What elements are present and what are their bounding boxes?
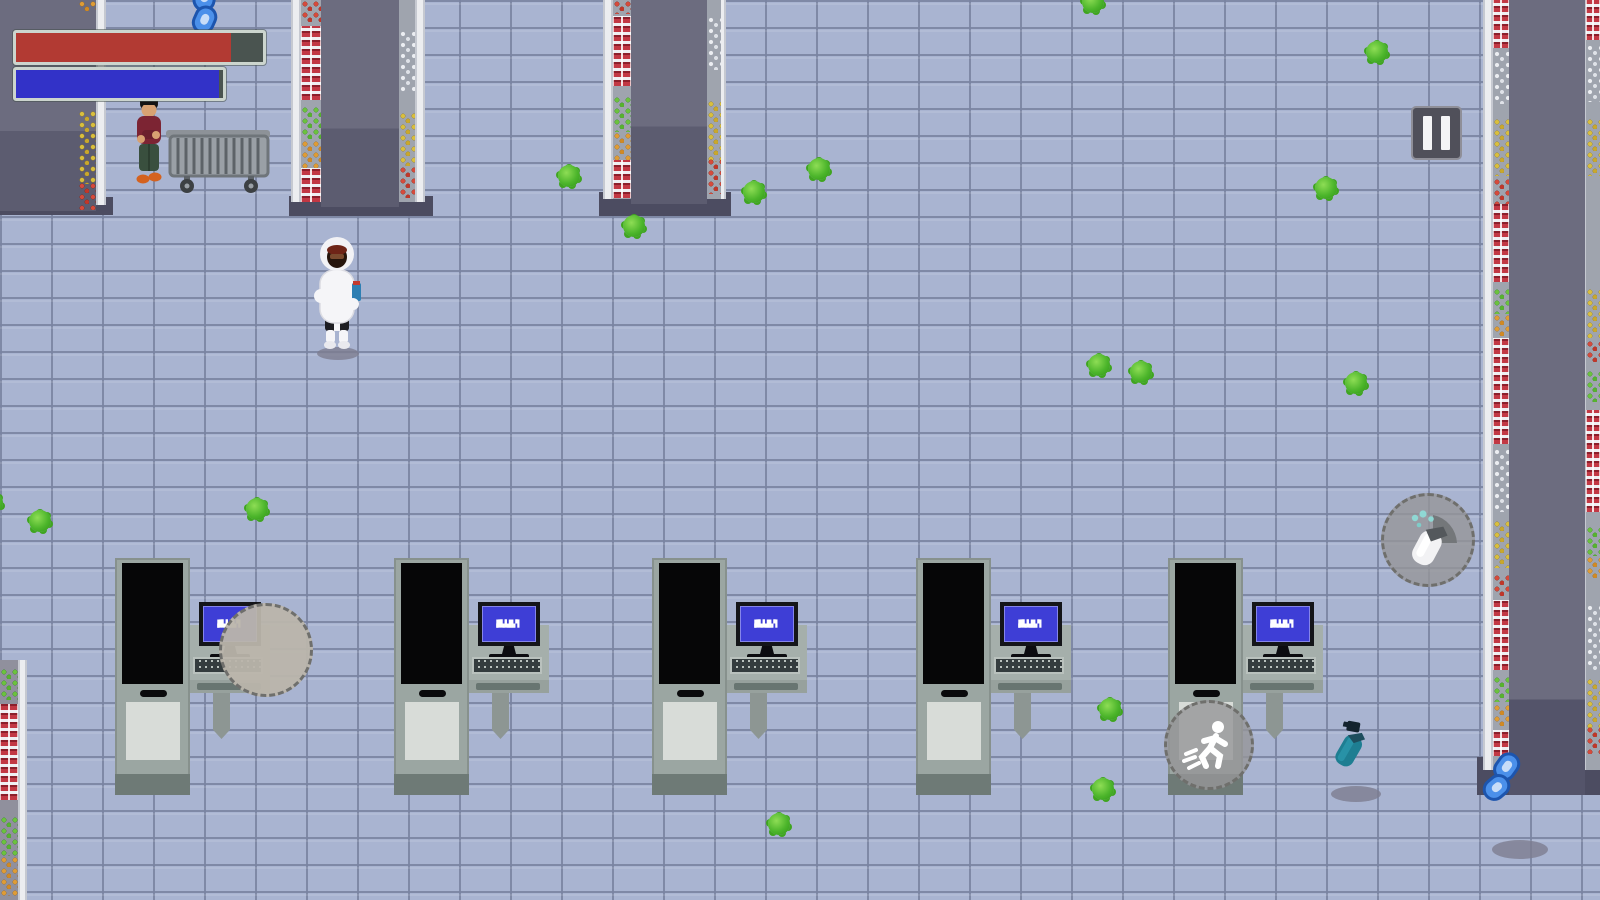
sprint-button[interactable] xyxy=(1164,700,1254,790)
virus xyxy=(0,492,3,514)
game-viewport: ▛▚▙▜▞▖ ▟▙▚▛▞▘ xyxy=(0,0,1600,900)
virus xyxy=(1130,361,1152,383)
health-bar xyxy=(13,30,266,65)
pause-icon xyxy=(1441,116,1450,150)
stamina-bar xyxy=(13,67,226,101)
pause-icon xyxy=(1423,116,1432,150)
virus xyxy=(246,498,268,520)
disinfect-spray-button[interactable] xyxy=(1381,493,1475,587)
virus xyxy=(1092,778,1114,800)
virus xyxy=(29,510,51,532)
health-bar-fill xyxy=(16,33,231,62)
running-man-icon xyxy=(1176,712,1242,778)
pause-button[interactable] xyxy=(1411,106,1462,160)
spray-bottle-icon xyxy=(1393,505,1463,575)
virus xyxy=(743,181,765,203)
extra-action-button[interactable] xyxy=(219,603,313,697)
viruses-layer xyxy=(0,0,1600,900)
virus xyxy=(1099,698,1121,720)
virus xyxy=(808,158,830,180)
virus xyxy=(558,165,580,187)
virus xyxy=(623,215,645,237)
virus xyxy=(1315,177,1337,199)
stamina-bar-fill xyxy=(16,70,219,98)
virus xyxy=(768,813,790,835)
virus xyxy=(1088,354,1110,376)
virus xyxy=(1345,372,1367,394)
virus xyxy=(1366,41,1388,63)
virus xyxy=(1082,0,1104,13)
